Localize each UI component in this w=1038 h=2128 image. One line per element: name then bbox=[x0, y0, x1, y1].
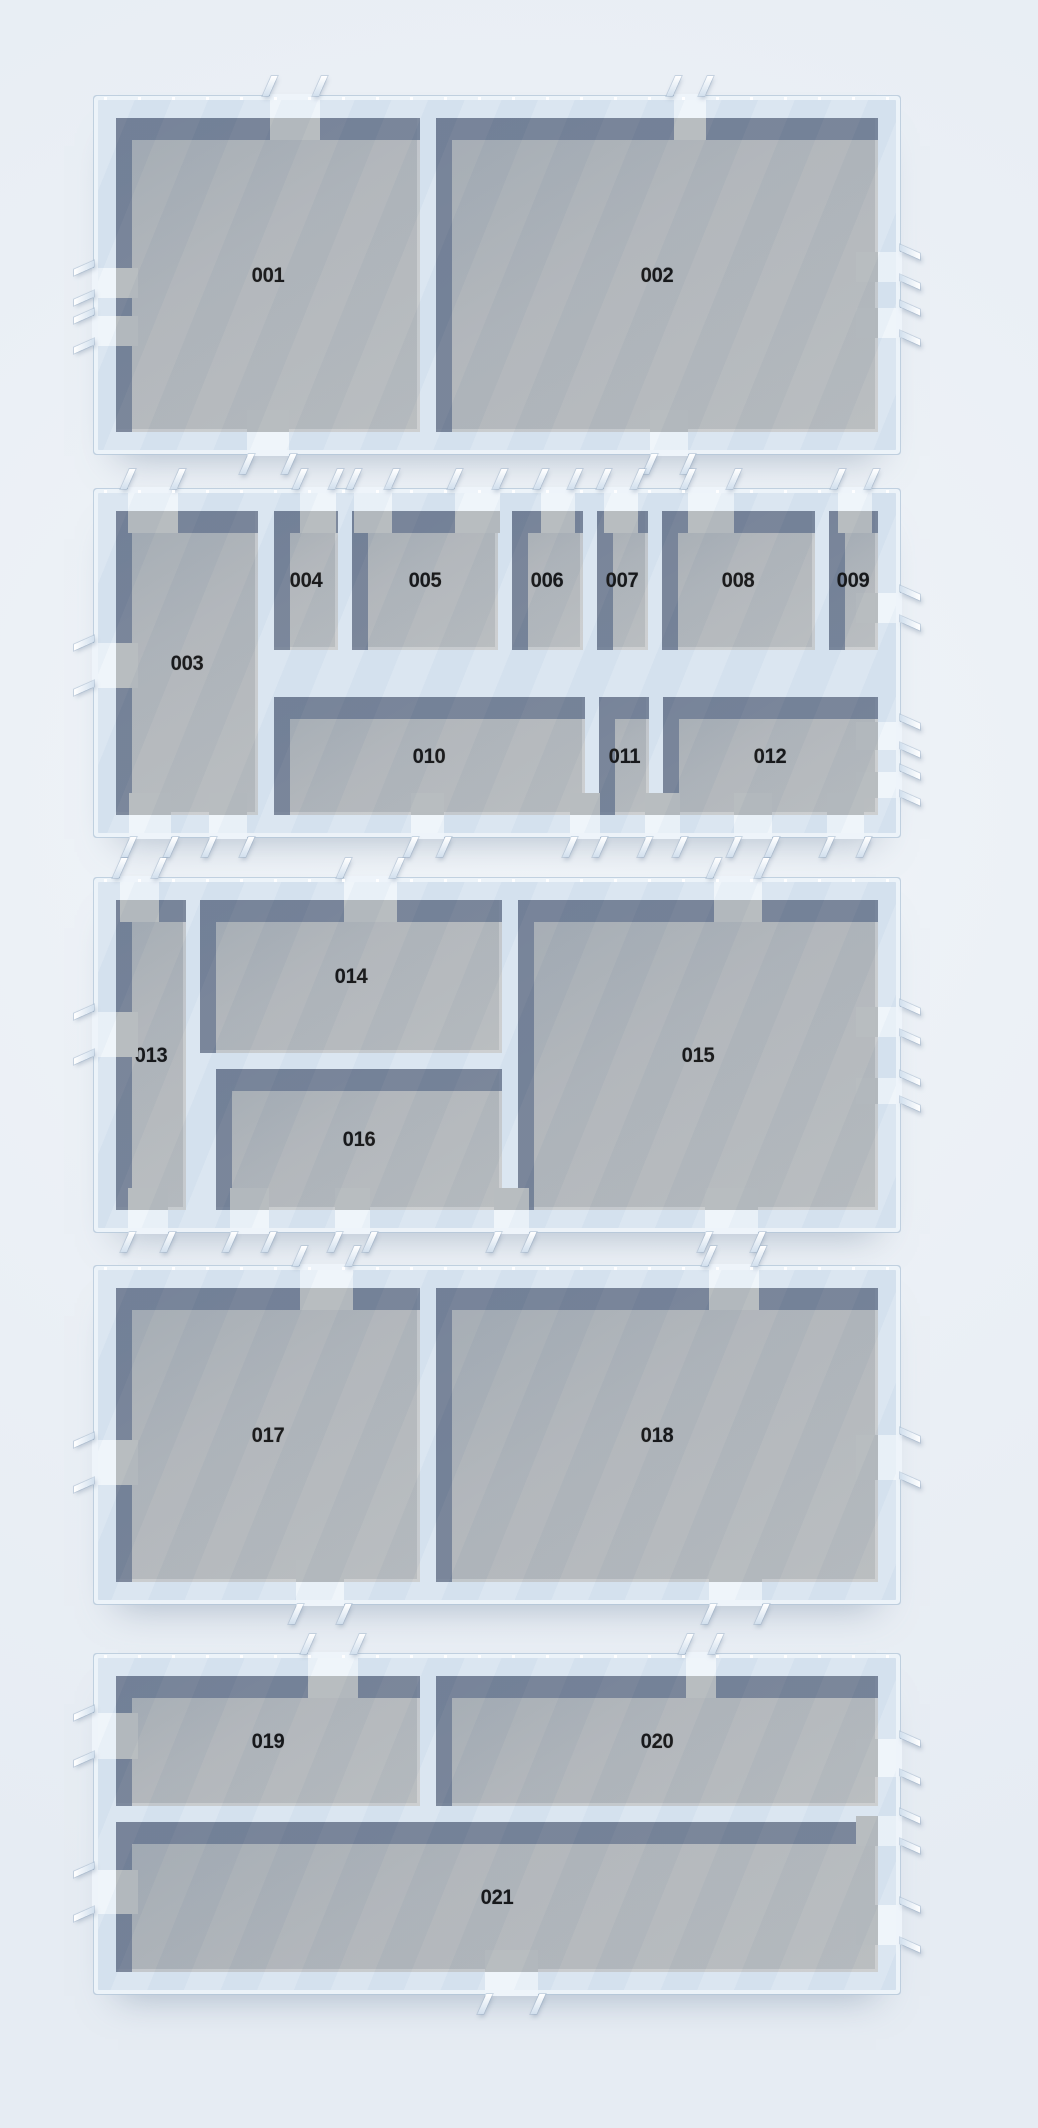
door-opening-5-left-4 bbox=[92, 1870, 138, 1914]
door-opening-1-top-1 bbox=[674, 94, 706, 140]
door-leaf-icon bbox=[643, 454, 658, 474]
door-opening-5-top-1 bbox=[686, 1652, 716, 1698]
room-label-006: 006 bbox=[531, 570, 564, 591]
door-opening-5-right-7 bbox=[856, 1905, 902, 1945]
door-opening-1-top-0 bbox=[270, 94, 320, 140]
door-leaf-icon bbox=[707, 858, 722, 878]
door-leaf-icon bbox=[263, 76, 278, 96]
room-label-004: 004 bbox=[290, 570, 323, 591]
door-leaf-icon bbox=[900, 331, 920, 346]
building-block-1: 001002 bbox=[98, 100, 896, 450]
door-leaf-icon bbox=[122, 837, 137, 857]
room-014: 014 bbox=[200, 900, 502, 1053]
door-leaf-icon bbox=[831, 469, 846, 489]
door-opening-3-bottom-3 bbox=[128, 1188, 168, 1234]
room-label-011: 011 bbox=[608, 746, 640, 767]
door-leaf-icon bbox=[727, 837, 742, 857]
door-leaf-icon bbox=[702, 1604, 717, 1624]
door-leaf-icon bbox=[337, 1604, 352, 1624]
room-019: 019 bbox=[116, 1676, 420, 1806]
door-opening-5-top-0 bbox=[308, 1652, 358, 1698]
door-leaf-icon bbox=[337, 858, 352, 878]
door-leaf-icon bbox=[74, 1050, 94, 1065]
room-label-021: 021 bbox=[481, 1887, 514, 1908]
door-leaf-icon bbox=[152, 858, 167, 878]
door-opening-4-right-5 bbox=[856, 1435, 902, 1480]
door-leaf-icon bbox=[313, 76, 328, 96]
floor-plan-canvas: 0010020030040050060070080090100110120130… bbox=[0, 0, 1038, 2128]
door-opening-2-bottom-12 bbox=[645, 793, 680, 839]
door-leaf-icon bbox=[534, 469, 549, 489]
door-opening-1-bottom-3 bbox=[650, 410, 688, 456]
door-opening-3-left-8 bbox=[92, 1012, 138, 1057]
door-opening-1-right-7 bbox=[856, 308, 902, 338]
door-opening-3-right-9 bbox=[856, 1007, 902, 1037]
door-leaf-icon bbox=[74, 1706, 94, 1721]
door-leaf-icon bbox=[900, 743, 920, 758]
door-leaf-icon bbox=[531, 1994, 546, 2014]
door-leaf-icon bbox=[328, 1232, 343, 1252]
door-leaf-icon bbox=[900, 586, 920, 601]
room-label-016: 016 bbox=[343, 1129, 376, 1150]
door-leaf-icon bbox=[900, 1732, 920, 1747]
room-label-020: 020 bbox=[641, 1731, 674, 1752]
building-block-3: 013014015016 bbox=[98, 882, 896, 1228]
door-leaf-icon bbox=[900, 715, 920, 730]
room-label-008: 008 bbox=[722, 570, 755, 591]
door-opening-5-bottom-2 bbox=[485, 1950, 538, 1996]
door-leaf-icon bbox=[522, 1232, 537, 1252]
door-opening-5-right-6 bbox=[856, 1816, 902, 1846]
door-leaf-icon bbox=[121, 469, 136, 489]
door-leaf-icon bbox=[262, 1232, 277, 1252]
door-leaf-icon bbox=[161, 1232, 176, 1252]
door-leaf-icon bbox=[293, 1246, 308, 1266]
door-leaf-icon bbox=[755, 1604, 770, 1624]
room-001: 001 bbox=[116, 118, 420, 432]
door-opening-4-bottom-2 bbox=[296, 1560, 344, 1606]
room-label-007: 007 bbox=[606, 570, 639, 591]
door-leaf-icon bbox=[74, 681, 94, 696]
room-label-012: 012 bbox=[754, 746, 787, 767]
door-opening-3-top-0 bbox=[120, 876, 159, 922]
door-opening-4-top-1 bbox=[709, 1264, 759, 1310]
door-opening-4-bottom-3 bbox=[709, 1560, 762, 1606]
room-label-002: 002 bbox=[641, 265, 674, 286]
room-label-014: 014 bbox=[335, 966, 368, 987]
building-block-5: 019020021 bbox=[98, 1658, 896, 1990]
door-leaf-icon bbox=[631, 469, 646, 489]
door-leaf-icon bbox=[282, 454, 297, 474]
door-leaf-icon bbox=[900, 301, 920, 316]
room-label-015: 015 bbox=[682, 1045, 715, 1066]
door-opening-3-top-1 bbox=[344, 876, 397, 922]
door-leaf-icon bbox=[493, 469, 508, 489]
door-leaf-icon bbox=[487, 1232, 502, 1252]
door-leaf-icon bbox=[74, 339, 94, 354]
door-leaf-icon bbox=[74, 1907, 94, 1922]
room-018: 018 bbox=[436, 1288, 878, 1582]
room-label-010: 010 bbox=[413, 746, 446, 767]
door-opening-2-bottom-13 bbox=[734, 793, 772, 839]
door-leaf-icon bbox=[74, 1005, 94, 1020]
door-leaf-icon bbox=[74, 1752, 94, 1767]
door-leaf-icon bbox=[900, 765, 920, 780]
door-leaf-icon bbox=[293, 469, 308, 489]
door-leaf-icon bbox=[699, 76, 714, 96]
door-leaf-icon bbox=[240, 454, 255, 474]
door-leaf-icon bbox=[597, 469, 612, 489]
door-leaf-icon bbox=[74, 261, 94, 276]
door-leaf-icon bbox=[900, 1428, 920, 1443]
building-block-2: 003004005006007008009010011012 bbox=[98, 493, 896, 833]
door-leaf-icon bbox=[202, 837, 217, 857]
door-opening-3-bottom-6 bbox=[494, 1188, 529, 1234]
door-leaf-icon bbox=[74, 636, 94, 651]
door-leaf-icon bbox=[593, 837, 608, 857]
door-leaf-icon bbox=[673, 837, 688, 857]
door-leaf-icon bbox=[900, 1097, 920, 1112]
door-leaf-icon bbox=[240, 837, 255, 857]
room-label-001: 001 bbox=[252, 265, 285, 286]
door-opening-2-right-16 bbox=[856, 593, 902, 623]
room-011: 011 bbox=[599, 697, 649, 815]
door-leaf-icon bbox=[755, 858, 770, 878]
door-opening-3-bottom-5 bbox=[335, 1188, 370, 1234]
door-leaf-icon bbox=[385, 469, 400, 489]
room-label-017: 017 bbox=[252, 1425, 285, 1446]
door-leaf-icon bbox=[404, 837, 419, 857]
door-leaf-icon bbox=[900, 245, 920, 260]
building-block-4: 017018 bbox=[98, 1270, 896, 1600]
door-opening-2-top-4 bbox=[541, 487, 575, 533]
door-opening-2-bottom-9 bbox=[209, 793, 247, 839]
door-leaf-icon bbox=[820, 837, 835, 857]
door-leaf-icon bbox=[437, 837, 452, 857]
door-leaf-icon bbox=[171, 469, 186, 489]
door-opening-4-top-0 bbox=[300, 1264, 353, 1310]
door-leaf-icon bbox=[865, 469, 880, 489]
door-opening-3-top-2 bbox=[714, 876, 762, 922]
door-opening-2-top-6 bbox=[688, 487, 734, 533]
door-leaf-icon bbox=[667, 76, 682, 96]
door-leaf-icon bbox=[900, 1071, 920, 1086]
door-leaf-icon bbox=[568, 469, 583, 489]
door-leaf-icon bbox=[329, 469, 344, 489]
room-015: 015 bbox=[518, 900, 878, 1210]
door-leaf-icon bbox=[74, 1863, 94, 1878]
door-leaf-icon bbox=[223, 1232, 238, 1252]
door-leaf-icon bbox=[121, 1232, 136, 1252]
door-leaf-icon bbox=[448, 469, 463, 489]
door-opening-1-left-4 bbox=[92, 268, 138, 298]
door-leaf-icon bbox=[857, 837, 872, 857]
door-opening-5-left-3 bbox=[92, 1713, 138, 1759]
door-leaf-icon bbox=[301, 1634, 316, 1654]
door-opening-2-top-1 bbox=[300, 487, 336, 533]
door-opening-2-bottom-11 bbox=[570, 793, 600, 839]
door-leaf-icon bbox=[765, 837, 780, 857]
door-leaf-icon bbox=[638, 837, 653, 857]
door-opening-2-top-2 bbox=[354, 487, 392, 533]
room-017: 017 bbox=[116, 1288, 420, 1582]
door-leaf-icon bbox=[900, 1839, 920, 1854]
door-opening-2-left-15 bbox=[92, 643, 138, 688]
door-opening-1-right-6 bbox=[856, 252, 902, 282]
door-leaf-icon bbox=[900, 616, 920, 631]
door-opening-4-left-4 bbox=[92, 1440, 138, 1485]
room-label-019: 019 bbox=[252, 1731, 285, 1752]
door-leaf-icon bbox=[900, 1770, 920, 1785]
door-leaf-icon bbox=[563, 837, 578, 857]
door-leaf-icon bbox=[900, 1030, 920, 1045]
door-leaf-icon bbox=[363, 1232, 378, 1252]
door-leaf-icon bbox=[74, 1478, 94, 1493]
door-opening-2-bottom-14 bbox=[827, 793, 864, 839]
room-label-005: 005 bbox=[409, 570, 442, 591]
door-leaf-icon bbox=[74, 309, 94, 324]
door-opening-3-bottom-4 bbox=[230, 1188, 269, 1234]
door-leaf-icon bbox=[390, 858, 405, 878]
room-020: 020 bbox=[436, 1676, 878, 1806]
door-leaf-icon bbox=[347, 469, 362, 489]
door-leaf-icon bbox=[900, 1938, 920, 1953]
door-leaf-icon bbox=[351, 1634, 366, 1654]
door-leaf-icon bbox=[900, 1809, 920, 1824]
room-label-009: 009 bbox=[837, 570, 870, 591]
door-leaf-icon bbox=[74, 291, 94, 306]
door-opening-2-top-7 bbox=[838, 487, 872, 533]
door-leaf-icon bbox=[164, 837, 179, 857]
door-leaf-icon bbox=[900, 1473, 920, 1488]
room-002: 002 bbox=[436, 118, 878, 432]
door-opening-5-right-5 bbox=[856, 1739, 902, 1777]
door-opening-2-right-17 bbox=[856, 722, 902, 750]
room-008: 008 bbox=[662, 511, 815, 650]
door-opening-2-right-18 bbox=[856, 772, 902, 798]
door-opening-3-bottom-7 bbox=[705, 1188, 758, 1234]
room-label-018: 018 bbox=[641, 1425, 674, 1446]
door-leaf-icon bbox=[900, 1898, 920, 1913]
door-opening-2-top-0 bbox=[128, 487, 178, 533]
door-leaf-icon bbox=[679, 1634, 694, 1654]
door-leaf-icon bbox=[709, 1634, 724, 1654]
door-leaf-icon bbox=[289, 1604, 304, 1624]
door-opening-3-right-10 bbox=[856, 1078, 902, 1104]
door-leaf-icon bbox=[346, 1246, 361, 1266]
door-leaf-icon bbox=[900, 1000, 920, 1015]
door-opening-1-bottom-2 bbox=[247, 410, 289, 456]
door-leaf-icon bbox=[74, 1433, 94, 1448]
door-opening-2-top-5 bbox=[604, 487, 638, 533]
door-leaf-icon bbox=[113, 858, 128, 878]
door-opening-2-top-3 bbox=[455, 487, 500, 533]
door-opening-2-bottom-8 bbox=[129, 793, 171, 839]
door-leaf-icon bbox=[900, 791, 920, 806]
door-opening-2-bottom-10 bbox=[411, 793, 444, 839]
door-leaf-icon bbox=[478, 1994, 493, 2014]
door-leaf-icon bbox=[727, 469, 742, 489]
room-label-003: 003 bbox=[171, 653, 204, 674]
door-leaf-icon bbox=[900, 275, 920, 290]
room-label-013: 013 bbox=[135, 1045, 168, 1066]
door-opening-1-left-5 bbox=[92, 316, 138, 346]
